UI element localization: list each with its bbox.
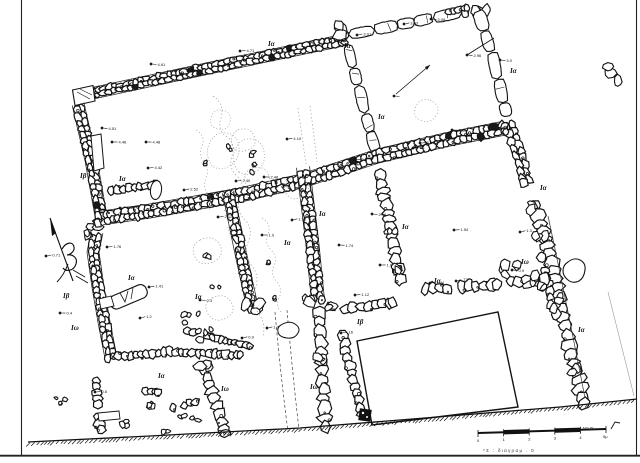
svg-text:Ια: Ια (577, 326, 585, 334)
svg-text:1.54: 1.54 (461, 227, 470, 232)
svg-text:Ια: Ια (127, 274, 135, 282)
svg-text:Ια: Ια (343, 42, 351, 50)
svg-text:4.61: 4.61 (158, 62, 167, 67)
svg-text:Ια: Ια (377, 113, 385, 121)
svg-text:0.3: 0.3 (207, 298, 213, 303)
svg-text:Ιβ: Ιβ (356, 318, 364, 326)
svg-text:Ιω: Ιω (520, 258, 529, 266)
svg-text:.16: .16 (347, 330, 353, 335)
svg-text:4.42: 4.42 (155, 165, 164, 170)
svg-text:Ια: Ια (539, 184, 547, 192)
svg-text:1.2: 1.2 (146, 314, 152, 319)
svg-text:Ια: Ια (318, 210, 326, 218)
svg-text:3.03: 3.03 (410, 20, 419, 25)
svg-text:*Σ : διαγραμ . 0: *Σ : διαγραμ . 0 (483, 448, 535, 454)
svg-text:2.44: 2.44 (127, 205, 136, 210)
svg-text:2.6: 2.6 (427, 140, 433, 145)
svg-text:2.2: 2.2 (361, 157, 367, 162)
svg-text:Ιβ: Ιβ (79, 172, 87, 180)
svg-text:4.48: 4.48 (153, 140, 162, 145)
svg-text:4.51: 4.51 (109, 126, 118, 131)
svg-text:2.40: 2.40 (243, 178, 252, 183)
svg-text:0.6: 0.6 (102, 389, 108, 394)
svg-text:3.01: 3.01 (363, 32, 372, 37)
svg-text:3.18: 3.18 (459, 128, 468, 133)
svg-text:4.71: 4.71 (247, 48, 256, 53)
svg-text:3.0: 3.0 (506, 58, 512, 63)
svg-text:Ιω: Ιω (220, 385, 229, 393)
svg-text:1.76: 1.76 (114, 244, 123, 249)
svg-text:2.48: 2.48 (271, 175, 280, 180)
svg-text:3.08: 3.08 (437, 17, 446, 22)
svg-text:2.12: 2.12 (225, 214, 234, 219)
svg-text:Ια: Ια (283, 239, 291, 247)
svg-text:5μ: 5μ (603, 434, 608, 439)
svg-text:Ια: Ια (118, 175, 126, 183)
svg-text:1.41: 1.41 (155, 284, 164, 289)
svg-text:4.10: 4.10 (293, 136, 302, 141)
svg-text:1.3: 1.3 (526, 228, 532, 233)
svg-text:Ιω: Ιω (309, 383, 318, 391)
svg-text:1.9: 1.9 (269, 233, 275, 238)
svg-text:1.0: 1.0 (273, 324, 279, 329)
svg-text:0.9: 0.9 (248, 334, 254, 339)
svg-text:1.98: 1.98 (298, 216, 307, 221)
svg-text:2.10: 2.10 (379, 212, 388, 217)
svg-text:Ια: Ια (401, 223, 409, 231)
svg-text:1.04: 1.04 (437, 280, 446, 285)
svg-text:0.9: 0.9 (519, 268, 525, 273)
svg-text:0.71: 0.71 (52, 253, 61, 258)
svg-text:2.96: 2.96 (474, 53, 483, 58)
svg-text:1.6: 1.6 (387, 262, 393, 267)
svg-text:Ια: Ια (509, 67, 517, 75)
svg-text:ΜΑΙΧ: ΜΑΙΧ (583, 426, 594, 431)
svg-text:Ιβ: Ιβ (62, 292, 70, 300)
svg-text:Ιω: Ιω (70, 324, 79, 332)
svg-text:.73: .73 (462, 277, 468, 282)
svg-text:4.46: 4.46 (119, 140, 128, 145)
svg-text:2.52: 2.52 (190, 186, 199, 191)
svg-text:1.12: 1.12 (361, 292, 370, 297)
svg-text:0.4: 0.4 (67, 311, 73, 316)
svg-text:3.1: 3.1 (419, 144, 425, 149)
svg-text:1.74: 1.74 (346, 243, 355, 248)
svg-text:Ια: Ια (267, 40, 275, 48)
svg-text:Ια: Ια (157, 372, 165, 380)
